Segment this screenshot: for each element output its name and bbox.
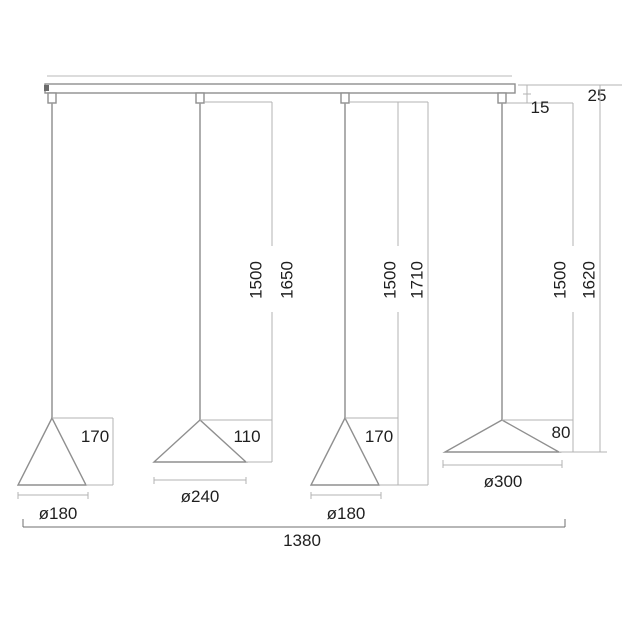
dim-label-total-drop-2: 1650 [278,261,297,299]
dim-label-shade-height-3: 170 [365,427,393,446]
cord-grip-4 [498,93,506,103]
dim-label-diameter-4: ø300 [484,472,523,491]
dim-label-bar-height: 25 [588,86,607,105]
drawing-page: 25 15 1500 1650 110 1500 1710 170 [0,0,630,630]
dim-label-diameter-2: ø240 [181,487,220,506]
dim-label-cord-length-3: 1500 [381,261,400,299]
shade-1-cone [18,418,86,485]
dim-label-shade-height-4: 80 [552,423,571,442]
dim-overall-width: 1380 [23,519,565,550]
dim-label-cord-length-2: 1500 [247,261,266,299]
mounting-bar [45,84,515,93]
dim-label-diameter-1: ø180 [39,504,78,523]
dim-diameters: ø180 ø240 ø180 ø300 [18,460,562,523]
dim-bar-height: 25 15 [507,85,622,117]
dim-group-pendant-2: 1500 1650 110 [200,102,297,462]
shade-2-cone [154,420,246,462]
technical-drawing-canvas: 25 15 1500 1650 110 1500 1710 170 [0,0,630,630]
dim-label-total-drop-4: 1620 [580,261,599,299]
dim-label-shade-height-2: 110 [233,427,260,446]
dim-label-total-drop-3: 1710 [408,261,427,299]
cord-grips [48,93,506,103]
ceiling-mount [44,76,515,93]
cord-grip-2 [196,93,204,103]
dim-label-overall-width: 1380 [283,531,321,550]
cord-grip-3 [341,93,349,103]
dim-label-diameter-3: ø180 [327,504,366,523]
dim-label-shade-height-1: 170 [81,427,109,446]
bar-end-cap [44,85,49,91]
dim-label-grip-height: 15 [531,98,550,117]
dim-group-pendant-4: 1500 1620 80 [502,85,607,452]
cord-grip-1 [48,93,56,103]
dim-label-cord-length-4: 1500 [551,261,570,299]
shade-4-cone [445,420,559,452]
dim-group-pendant-3: 1500 1710 170 [345,102,428,485]
